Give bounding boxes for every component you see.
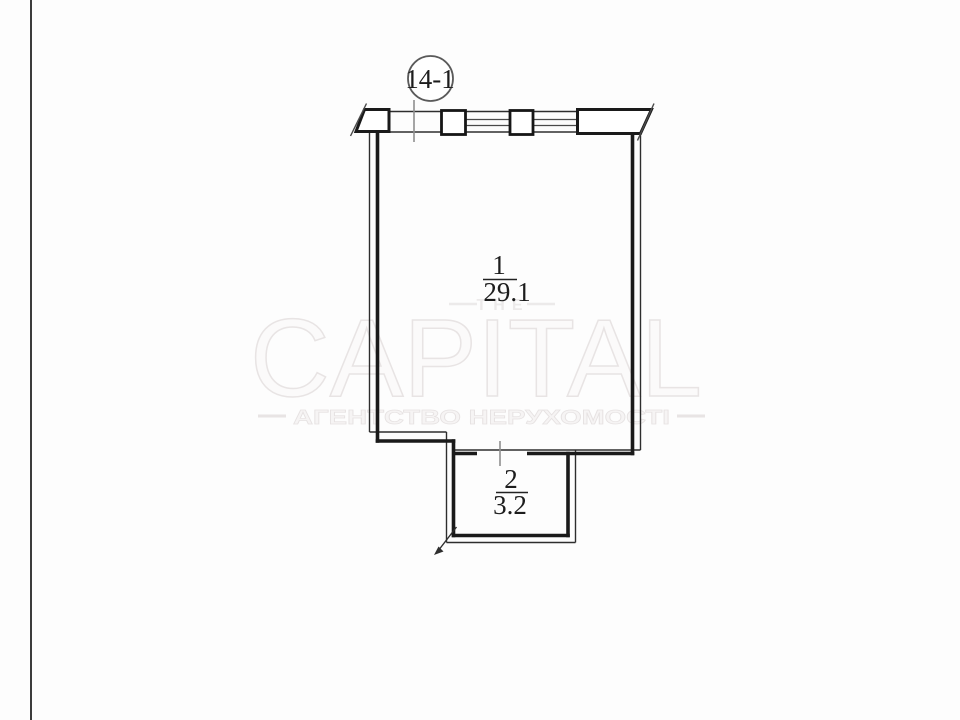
watermark: THE CAPITAL АГЕНТСТВО НЕРУХОМОСТІ: [250, 297, 705, 429]
top-left-wall-corner: [356, 110, 389, 132]
break-arrow-head: [434, 547, 444, 556]
window-pier-2: [510, 111, 533, 135]
section-marker-label: 14-1: [405, 64, 455, 94]
top-right-wall-corner: [578, 110, 652, 134]
room1-area: 29.1: [483, 277, 530, 307]
room1-label: 1 29.1: [483, 250, 531, 307]
floor-plan-svg: THE CAPITAL АГЕНТСТВО НЕРУХОМОСТІ: [0, 0, 960, 720]
floor-plan-page: THE CAPITAL АГЕНТСТВО НЕРУХОМОСТІ: [0, 0, 960, 720]
window-pier-1: [442, 111, 466, 135]
watermark-tagline-text: АГЕНТСТВО НЕРУХОМОСТІ: [293, 407, 670, 429]
break-arrow-line: [438, 527, 457, 551]
room1-number: 1: [492, 250, 506, 280]
room2-label: 2 3.2: [493, 464, 528, 520]
room2-area: 3.2: [493, 490, 527, 520]
